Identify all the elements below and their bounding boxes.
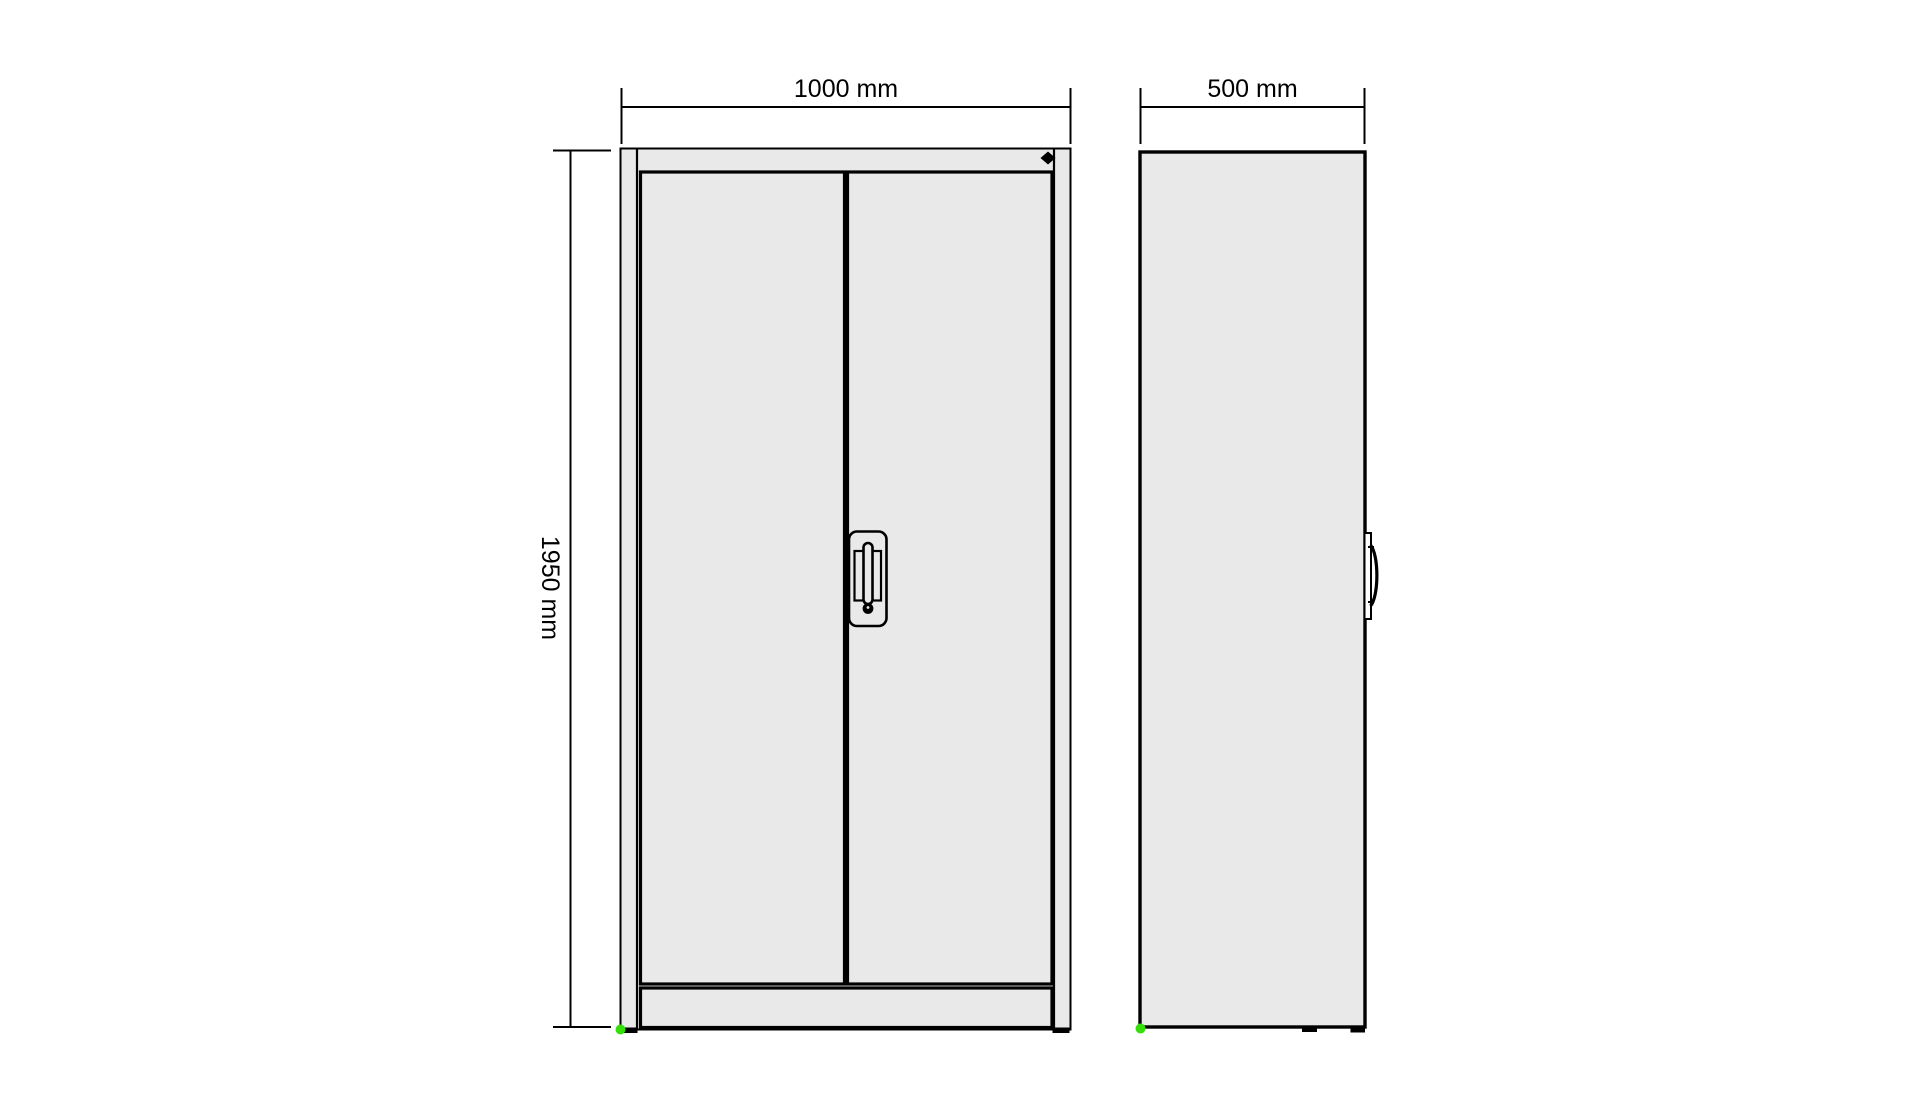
origin-point-marker: [1136, 1024, 1146, 1034]
dimension-front-width: 1000 mm: [622, 75, 1071, 144]
keyhole-center: [867, 606, 870, 609]
handle-grip: [864, 543, 873, 604]
front-right-foot: [1053, 1028, 1070, 1034]
dimension-front-height: 1950 mm: [536, 151, 611, 1028]
origin-point-marker: [616, 1025, 626, 1035]
drawing-canvas: 1000 mm 500 mm 1950 mm: [0, 0, 1920, 1104]
front-plinth-panel: [641, 988, 1053, 1028]
side-door-handle: [1365, 533, 1377, 619]
side-view: [1136, 152, 1377, 1034]
front-door-handle: [849, 532, 887, 627]
dimension-side-depth: 500 mm: [1141, 75, 1365, 144]
side-cabinet-body: [1140, 152, 1365, 1027]
front-width-dimension-label: 1000 mm: [794, 75, 898, 103]
cabinet-technical-drawing: 1000 mm 500 mm 1950 mm: [0, 0, 1920, 1104]
front-view: [616, 149, 1071, 1035]
side-front-foot: [1302, 1027, 1317, 1032]
front-height-dimension-label: 1950 mm: [536, 536, 564, 640]
side-depth-dimension-label: 500 mm: [1207, 75, 1297, 103]
side-rear-foot: [1351, 1027, 1366, 1033]
front-left-door: [641, 172, 845, 984]
